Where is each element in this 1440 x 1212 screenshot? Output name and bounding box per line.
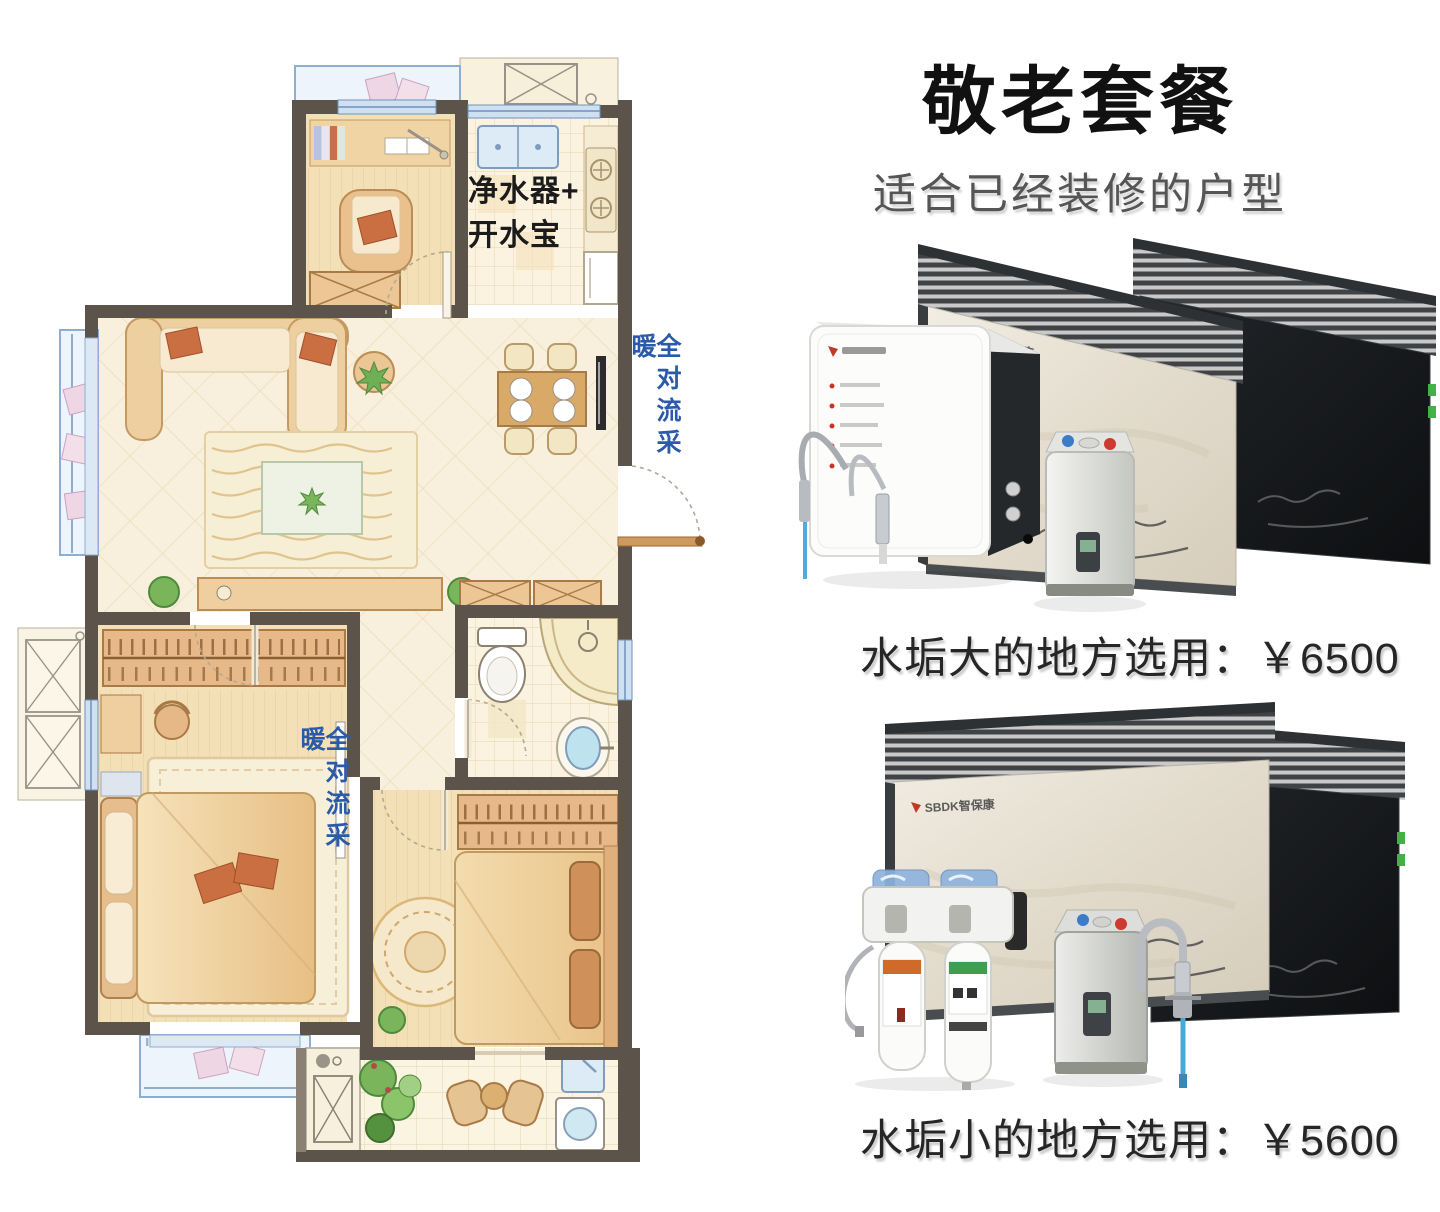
heating-label-bedroom: 全对流采暖 [298,726,348,876]
heating-label-entry: 全对流采暖 [629,333,679,483]
package-title: 敬老套餐 [740,42,1420,149]
product-image-hard-water: SBDK智保康 [788,234,1438,614]
kitchen-device-label-line1: 净水器+ [468,170,580,214]
equipment-platform [26,632,84,788]
floor-plan-drawing [0,0,720,1212]
package-panel: 敬老套餐 适合已经装修的户型 [720,0,1440,1212]
hot-water-dispenser-faucet [1043,910,1201,1088]
price-line-hard-water: 水垢大的地方选用：￥6500 [860,624,1440,686]
product-image-soft-water: SBDK智保康 [845,692,1440,1092]
price-line-soft-water: 水垢小的地方选用：￥5600 [860,1106,1440,1168]
radiator-entry [596,356,606,430]
page: 净水器+ 开水宝 全对流采暖 全对流采暖 敬老套餐 适合已经装修的户型 [0,0,1440,1212]
hot-water-dispenser [1034,432,1146,612]
water-purifier-box [799,322,1040,589]
kitchen-device-label: 净水器+ 开水宝 [468,170,580,258]
kitchen-device-label-line2: 开水宝 [468,214,580,258]
package-subtitle: 适合已经装修的户型 [740,160,1420,222]
floor-plan: 净水器+ 开水宝 全对流采暖 全对流采暖 [0,0,720,1212]
